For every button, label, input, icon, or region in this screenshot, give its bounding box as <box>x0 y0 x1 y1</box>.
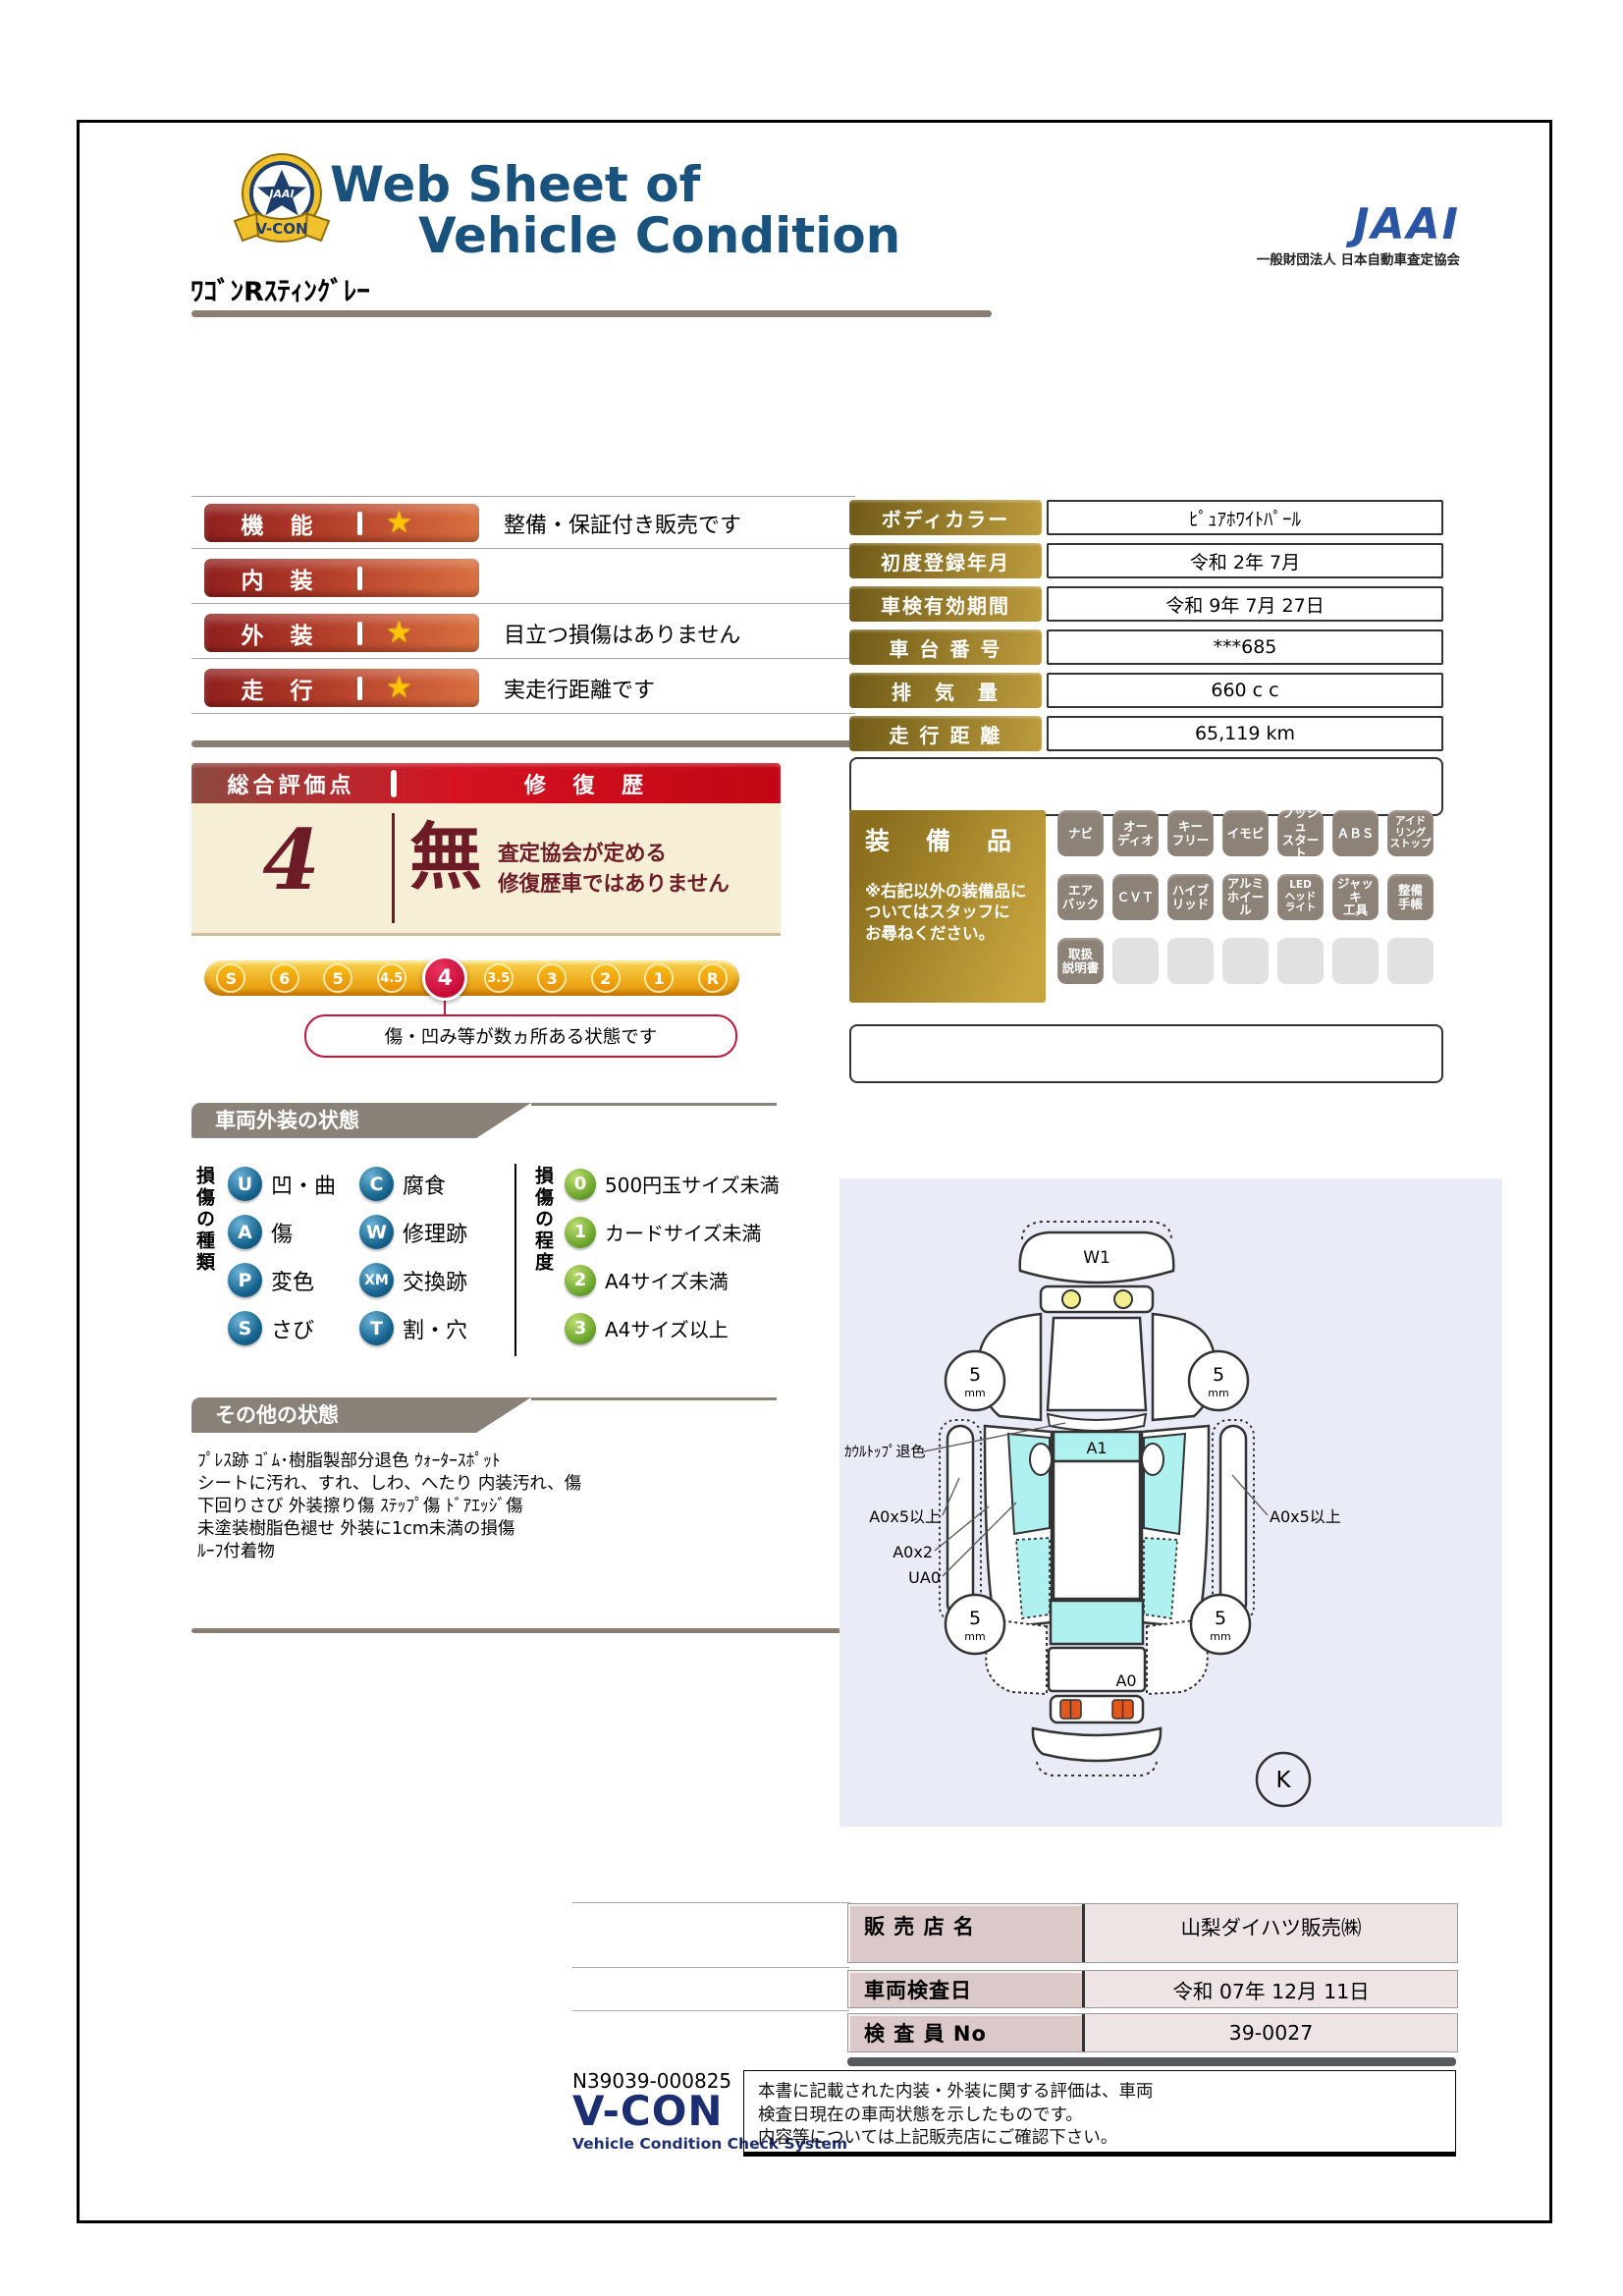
emblem-star-text: JAAI <box>267 188 294 200</box>
info-value: ***685 <box>1047 629 1443 665</box>
legend-item: XM交換跡 <box>359 1256 509 1304</box>
callout-pointer <box>444 1001 446 1014</box>
kind-label: 修理跡 <box>403 1217 467 1248</box>
equipment-badge-empty <box>1167 938 1214 984</box>
dealer-value: 山梨ダイハツ販売㈱ <box>1082 1904 1457 1962</box>
dealer-row: 検 査 員 No 39-0027 <box>847 2013 1458 2052</box>
divider-rule <box>191 310 992 317</box>
right-note1-label: A0x5以上 <box>1270 1507 1341 1526</box>
info-value: 660 c c <box>1047 673 1443 708</box>
legend-item: C腐食 <box>359 1160 509 1208</box>
rating-bar-interior: 内 装 <box>204 559 479 597</box>
table-row: ボディカラー ﾋﾟｭｱﾎﾜｲﾄﾊﾟｰﾙ <box>849 500 1443 535</box>
separator-line <box>191 548 855 549</box>
legend-item: Sさび <box>228 1304 359 1352</box>
scale-value: 1 <box>644 963 674 993</box>
table-row: 初度登録年月 令和 2年 7月 <box>849 543 1443 578</box>
info-label: 排 気 量 <box>849 673 1042 708</box>
dealer-row: 販 売 店 名 山梨ダイハツ販売㈱ <box>847 1903 1458 1963</box>
equipment-badge: アルミ ホイール <box>1222 874 1269 920</box>
kind-label: さび <box>271 1313 314 1344</box>
wheel-front-left: 5 mm <box>946 1351 1004 1410</box>
k-mark-label: K <box>1275 1768 1291 1793</box>
tread-depth-value: 5 <box>969 1364 981 1386</box>
section-header-line <box>531 1397 777 1400</box>
scale-item: 4.5 <box>365 960 419 996</box>
rating-bar-mileage: 走 行 ★ <box>204 669 479 707</box>
overall-score-title: 総合評価点 <box>191 768 391 799</box>
mirror-left <box>1030 1444 1052 1475</box>
section-header-line <box>531 1103 777 1106</box>
other-line: シートに汚れ、すれ、しわ、へたり 内装汚れ、傷 <box>197 1473 639 1496</box>
legend-divider <box>514 1164 516 1356</box>
other-line: ﾙｰﾌ付着物 <box>197 1541 639 1563</box>
table-row: 走 行 距 離 65,119 km <box>849 716 1443 751</box>
rating-bar-function: 機 能 ★ <box>204 504 479 542</box>
other-line: 下回りさび 外装擦り傷 ｽﾃｯﾌﾟ傷 ﾄﾞｱｴｯｼﾞ傷 <box>197 1496 639 1518</box>
jaai-subtitle: 一般財団法人 日本自動車査定協会 <box>1160 248 1460 268</box>
scale-value: R <box>698 963 728 993</box>
damage-legend: 損傷の種類 U凹・曲 A傷 P変色 Sさび C腐食 W修理跡 XM交換跡 T割・… <box>191 1160 786 1356</box>
degree-label: A4サイズ未満 <box>605 1266 729 1294</box>
equipment-badge: LED ヘッド ライト <box>1277 874 1324 920</box>
section-header-other: その他の状態 <box>191 1397 476 1433</box>
kind-p-icon: P <box>228 1263 262 1297</box>
kind-label: 交換跡 <box>403 1265 467 1296</box>
equipment-badge: イモビ <box>1222 810 1269 856</box>
kind-label: 割・穴 <box>403 1313 467 1344</box>
rating-note: 整備・保証付き販売です <box>504 504 857 542</box>
scale-item: 5 <box>311 960 365 996</box>
equipment-badge: ＡＢＳ <box>1332 810 1379 856</box>
equipment-badge: エア バック <box>1057 874 1104 920</box>
info-label: 車 台 番 号 <box>849 629 1042 665</box>
equipment-title: 装 備 品 <box>865 822 1046 857</box>
kind-s-icon: S <box>228 1311 262 1345</box>
sheet-title-line2: Vehicle Condition <box>418 207 900 264</box>
wheel-rear-right: 5 mm <box>1191 1595 1250 1654</box>
equipment-badge: ハイブ リッド <box>1167 874 1214 920</box>
kind-t-icon: T <box>359 1311 394 1345</box>
degree-label: カードサイズ未満 <box>605 1218 761 1246</box>
left-note3-label: UA0 <box>908 1568 941 1587</box>
table-ext-line <box>572 1967 849 1968</box>
section-header-exterior: 車両外装の状態 <box>191 1103 476 1138</box>
legend-item: W修理跡 <box>359 1208 509 1256</box>
cowl-note-label: ｶｳﾙﾄｯﾌﾟ退色 <box>844 1443 926 1460</box>
tread-depth-value: 5 <box>1215 1608 1226 1629</box>
star-icon: ★ <box>386 509 412 538</box>
score-callout: 傷・凹み等が数ヵ所ある状態です <box>304 1014 737 1058</box>
equipment-badge: プッシュ スタート <box>1277 810 1324 856</box>
equipment-panel: 装 備 品 ※右記以外の装備品に ついてはスタッフに お尋ねください。 <box>849 810 1046 1003</box>
score-scale: S 6 5 4.5 4 3.5 3 2 1 R <box>204 960 739 996</box>
equipment-badge-empty <box>1112 938 1159 984</box>
dealer-label: 販 売 店 名 <box>848 1904 1082 1962</box>
table-ext-line <box>572 1902 849 1903</box>
table-bottom-bar <box>847 2057 1456 2066</box>
star-icon: ★ <box>386 619 412 648</box>
rating-note: 目立つ損傷はありません <box>504 614 857 652</box>
star-icon: ★ <box>386 674 412 703</box>
equipment-badge: ジャッキ 工具 <box>1332 874 1379 920</box>
kind-label: 凹・曲 <box>271 1169 336 1200</box>
other-line: ﾌﾟﾚｽ跡 ｺﾞﾑ･樹脂製部分退色 ｳｫｰﾀｰｽﾎﾟｯﾄ <box>197 1450 639 1473</box>
info-label: ボディカラー <box>849 500 1042 535</box>
scale-item: 3.5 <box>472 960 526 996</box>
repair-note-line1: 査定協会が定める <box>498 839 730 869</box>
vcon-footer-logo: V-CON <box>572 2091 724 2132</box>
emblem-ribbon-text: V-CON <box>255 220 307 238</box>
info-label: 車検有効期間 <box>849 586 1042 622</box>
damage-patch-rear-door-left <box>1016 1538 1050 1618</box>
front-damage-label: W1 <box>1083 1248 1110 1268</box>
equipment-badge: ナビ <box>1057 810 1104 856</box>
dealer-label: 車両検査日 <box>848 1971 1082 2007</box>
headlight-right-icon <box>1114 1290 1132 1308</box>
damage-patch-rear-door-right <box>1144 1538 1177 1618</box>
disclaimer-line: 内容等については上記販売店にご確認下さい。 <box>758 2127 1441 2151</box>
vehicle-condition-sheet: JAAI V-CON Web Sheet of Vehicle Conditio… <box>0 0 1623 2296</box>
equipment-badge: 取扱 説明書 <box>1057 938 1104 984</box>
dealer-value: 令和 07年 12月 11日 <box>1082 1971 1457 2007</box>
repair-history-note: 査定協会が定める 修復歴車ではありません <box>498 839 730 900</box>
kind-c-icon: C <box>359 1167 394 1201</box>
empty-info-box <box>849 757 1443 816</box>
rating-bar-exterior: 外 装 ★ <box>204 614 479 652</box>
scale-value: 6 <box>270 963 299 993</box>
legend-item: 3A4サイズ以上 <box>565 1304 780 1352</box>
equipment-badge-empty <box>1222 938 1269 984</box>
overall-score-body: 4 無 査定協会が定める 修復歴車ではありません <box>191 803 781 936</box>
info-label: 初度登録年月 <box>849 543 1042 578</box>
overall-score-value: 4 <box>191 811 391 908</box>
repair-history-title: 修 復 歴 <box>397 768 781 799</box>
equipment-badge-empty <box>1387 938 1434 984</box>
scale-item: 1 <box>632 960 686 996</box>
separator-line <box>191 603 855 604</box>
table-row: 排 気 量 660 c c <box>849 673 1443 708</box>
equipment-badge-empty <box>1277 938 1324 984</box>
rating-divider <box>357 677 362 700</box>
table-row: 車 台 番 号 ***685 <box>849 629 1443 665</box>
scale-item: S <box>204 960 258 996</box>
info-value: 令和 9年 7月 27日 <box>1047 586 1443 622</box>
scale-value: 2 <box>591 963 621 993</box>
sheet-frame: JAAI V-CON Web Sheet of Vehicle Conditio… <box>77 120 1552 2223</box>
damage-degree-title: 損傷の程度 <box>530 1166 557 1356</box>
degree-label: A4サイズ以上 <box>605 1314 729 1342</box>
info-value: 令和 2年 7月 <box>1047 543 1443 578</box>
dealer-label: 検 査 員 No <box>848 2014 1082 2051</box>
rear-damage-label: A0 <box>1115 1671 1136 1690</box>
other-line: 未塗装樹脂色褪せ 外装に1cm未満の損傷 <box>197 1518 639 1541</box>
equipment-note: ※右記以外の装備品に ついてはスタッフに お尋ねください。 <box>865 881 1046 944</box>
headlight-bar <box>1041 1286 1153 1312</box>
kind-label: 腐食 <box>403 1169 446 1200</box>
scale-item: 2 <box>579 960 633 996</box>
tread-depth-unit: mm <box>964 1630 985 1643</box>
other-status-text: ﾌﾟﾚｽ跡 ｺﾞﾑ･樹脂製部分退色 ｳｫｰﾀｰｽﾎﾟｯﾄ シートに汚れ、すれ、し… <box>197 1450 639 1563</box>
disclaimer-line: 検査日現在の車両状態を示したものです。 <box>758 2105 1441 2128</box>
info-value: ﾋﾟｭｱﾎﾜｲﾄﾊﾟｰﾙ <box>1047 500 1443 535</box>
tread-depth-value: 5 <box>969 1608 981 1629</box>
tread-depth-unit: mm <box>1208 1387 1228 1399</box>
rating-label: 走 行 <box>204 672 352 705</box>
scale-item-active: 4 <box>418 960 472 996</box>
table-row: 車検有効期間 令和 9年 7月 27日 <box>849 586 1443 622</box>
wheel-front-right: 5 mm <box>1189 1351 1248 1410</box>
rating-divider <box>357 512 362 535</box>
sill-left <box>947 1426 973 1616</box>
degree-label: 500円玉サイズ未満 <box>605 1170 780 1198</box>
wheel-rear-left: 5 mm <box>946 1595 1004 1654</box>
equipment-badge: ＣＶＴ <box>1112 874 1159 920</box>
divider-rule <box>191 1628 855 1633</box>
sheet-title-line1: Web Sheet of <box>330 156 700 213</box>
disclaimer-box: 本書に記載された内装・外装に関する評価は、車両 検査日現在の車両状態を示したもの… <box>743 2070 1456 2157</box>
kind-xm-icon: XM <box>359 1263 394 1297</box>
divider-rule <box>191 740 855 747</box>
vehicle-name: ﾜｺﾞﾝRｽﾃｨﾝｸﾞﾚｰ <box>190 270 370 308</box>
empty-info-box <box>849 1024 1443 1083</box>
rating-label: 内 装 <box>204 562 352 595</box>
equipment-badge: キー フリー <box>1167 810 1214 856</box>
scale-value: 3.5 <box>484 963 514 993</box>
jaai-logo: JAAI <box>1209 199 1460 249</box>
damage-degree-col: 0500円玉サイズ未満 1カードサイズ未満 2A4サイズ未満 3A4サイズ以上 <box>565 1160 780 1356</box>
legend-item: P変色 <box>228 1256 359 1304</box>
legend-item: A傷 <box>228 1208 359 1256</box>
rating-note: 実走行距離です <box>504 669 857 707</box>
legend-item: 2A4サイズ未満 <box>565 1256 780 1304</box>
disclaimer-line: 本書に記載された内装・外装に関する評価は、車両 <box>758 2081 1441 2105</box>
repair-history-mark: 無 <box>409 821 482 894</box>
rating-divider <box>357 567 362 590</box>
damage-patch-rear-window <box>1051 1601 1143 1644</box>
car-damage-diagram: W1 A1 A <box>839 1178 1502 1827</box>
kind-label: 変色 <box>271 1265 314 1296</box>
rating-label: 外 装 <box>204 617 352 650</box>
mirror-right <box>1142 1444 1163 1475</box>
rating-divider <box>357 622 362 645</box>
dealer-row: 車両検査日 令和 07年 12月 11日 <box>847 1970 1458 2008</box>
scale-item: 6 <box>258 960 312 996</box>
kind-a-icon: A <box>228 1215 262 1249</box>
degree-0-icon: 0 <box>565 1169 596 1200</box>
dealer-value: 39-0027 <box>1082 2014 1457 2051</box>
table-ext-line <box>572 2010 849 2011</box>
separator-line <box>191 496 855 497</box>
roof-panel <box>1054 1461 1140 1599</box>
body-divider <box>392 813 395 923</box>
scale-value: 4 <box>422 956 467 1001</box>
roof-damage-label: A1 <box>1086 1439 1107 1457</box>
overall-score-box: 総合評価点 修 復 歴 4 無 査定協会が定める 修復歴車ではありません <box>191 763 781 933</box>
legend-item: T割・穴 <box>359 1304 509 1352</box>
headlight-left-icon <box>1062 1290 1080 1308</box>
overall-score-header: 総合評価点 修 復 歴 <box>191 763 781 803</box>
kind-label: 傷 <box>271 1217 293 1248</box>
separator-line <box>191 713 855 714</box>
legend-item: 1カードサイズ未満 <box>565 1208 780 1256</box>
separator-line <box>191 658 855 659</box>
degree-3-icon: 3 <box>565 1313 596 1344</box>
damage-kind-col2: C腐食 W修理跡 XM交換跡 T割・穴 <box>359 1160 509 1356</box>
equipment-badge: オー ディオ <box>1112 810 1159 856</box>
scale-value: 5 <box>323 963 352 993</box>
repair-note-line2: 修復歴車ではありません <box>498 869 730 900</box>
hood-windshield <box>1048 1318 1146 1410</box>
scale-value: 4.5 <box>377 963 406 993</box>
tread-depth-value: 5 <box>1213 1364 1224 1386</box>
equipment-badge: アイド リング ストップ <box>1387 810 1434 856</box>
equipment-badges: ナビ オー ディオ キー フリー イモビ プッシュ スタート ＡＢＳ アイド リ… <box>1057 810 1442 984</box>
degree-2-icon: 2 <box>565 1265 596 1296</box>
rating-label: 機 能 <box>204 507 352 540</box>
vcon-emblem-logo: JAAI V-CON <box>225 152 339 256</box>
degree-1-icon: 1 <box>565 1217 596 1248</box>
vehicle-info-table: ボディカラー ﾋﾟｭｱﾎﾜｲﾄﾊﾟｰﾙ 初度登録年月 令和 2年 7月 車検有効… <box>849 500 1443 759</box>
equipment-badge: 整備 手帳 <box>1387 874 1434 920</box>
scale-item: 3 <box>525 960 579 996</box>
scale-item: R <box>686 960 740 996</box>
left-note1-label: A0x5以上 <box>869 1507 941 1526</box>
info-label: 走 行 距 離 <box>849 716 1042 751</box>
scale-value: S <box>216 963 245 993</box>
scale-value: 3 <box>537 963 567 993</box>
info-value: 65,119 km <box>1047 716 1443 751</box>
kind-u-icon: U <box>228 1167 262 1201</box>
tread-depth-unit: mm <box>1210 1630 1230 1643</box>
kind-w-icon: W <box>359 1215 394 1249</box>
equipment-badge-empty <box>1332 938 1379 984</box>
damage-kind-title: 損傷の種類 <box>191 1166 218 1356</box>
legend-item: U凹・曲 <box>228 1160 359 1208</box>
left-note2-label: A0x2 <box>893 1543 933 1561</box>
tread-depth-unit: mm <box>964 1387 985 1399</box>
sill-right <box>1220 1426 1246 1616</box>
legend-item: 0500円玉サイズ未満 <box>565 1160 780 1208</box>
damage-kind-col1: U凹・曲 A傷 P変色 Sさび <box>228 1160 359 1356</box>
